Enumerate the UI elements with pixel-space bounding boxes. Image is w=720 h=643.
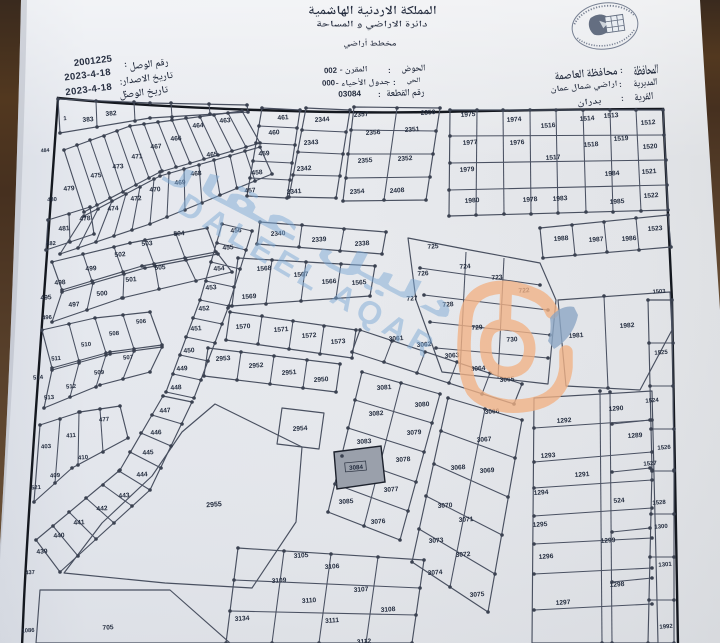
- svg-text:499: 499: [85, 265, 97, 273]
- svg-text:3134: 3134: [235, 615, 250, 623]
- svg-text:1503: 1503: [652, 288, 666, 296]
- svg-text:03084: 03084: [338, 89, 362, 99]
- svg-text:506: 506: [136, 318, 147, 326]
- svg-text:465: 465: [206, 151, 218, 159]
- svg-text:513: 513: [44, 394, 55, 402]
- svg-text:2342: 2342: [297, 165, 312, 173]
- svg-text:459: 459: [258, 150, 270, 158]
- svg-text:1975: 1975: [461, 111, 476, 119]
- svg-text:3077: 3077: [384, 486, 399, 494]
- svg-text:1983: 1983: [553, 195, 568, 203]
- svg-text:453: 453: [205, 284, 217, 292]
- svg-text:473: 473: [112, 163, 124, 171]
- svg-text:1987: 1987: [589, 236, 604, 244]
- svg-text:729: 729: [471, 324, 483, 332]
- svg-text:1528: 1528: [652, 499, 666, 507]
- svg-text:2352: 2352: [398, 155, 413, 163]
- svg-text:1297: 1297: [556, 599, 571, 607]
- svg-text:383: 383: [82, 116, 94, 124]
- svg-text:439: 439: [36, 548, 48, 556]
- svg-text:461: 461: [277, 114, 289, 122]
- svg-text:444: 444: [136, 471, 148, 479]
- svg-text:724: 724: [459, 263, 471, 271]
- svg-text:471: 471: [131, 153, 143, 161]
- svg-text:478: 478: [79, 215, 91, 223]
- svg-text:472: 472: [130, 195, 142, 203]
- svg-text:1519: 1519: [614, 135, 629, 143]
- svg-text:1569: 1569: [242, 293, 257, 301]
- svg-text:3078: 3078: [396, 456, 411, 464]
- svg-text:512: 512: [66, 383, 77, 391]
- svg-text:3106: 3106: [325, 563, 340, 571]
- svg-text:1992: 1992: [659, 623, 673, 631]
- svg-text:1980: 1980: [465, 197, 480, 205]
- svg-text:498: 498: [54, 279, 66, 287]
- svg-text:1512: 1512: [641, 119, 656, 127]
- svg-text:1514: 1514: [580, 115, 595, 123]
- svg-text:1527: 1527: [643, 460, 657, 468]
- svg-text:514: 514: [33, 374, 44, 382]
- svg-text:1979: 1979: [460, 166, 475, 174]
- svg-text:2354: 2354: [350, 188, 365, 196]
- svg-text:1526: 1526: [657, 444, 671, 452]
- svg-text:497: 497: [68, 301, 80, 309]
- svg-text:3072: 3072: [456, 551, 471, 559]
- svg-text:1523: 1523: [648, 225, 663, 233]
- svg-text:1982: 1982: [620, 322, 635, 330]
- svg-text:475: 475: [90, 172, 102, 180]
- svg-text:1981: 1981: [569, 332, 584, 340]
- svg-text:463: 463: [219, 117, 231, 125]
- svg-text:2955: 2955: [206, 501, 222, 509]
- svg-text:730: 730: [506, 336, 518, 344]
- svg-text:1520: 1520: [643, 143, 658, 151]
- svg-text:1299: 1299: [601, 537, 616, 545]
- svg-text:1985: 1985: [610, 198, 625, 206]
- svg-text:3111: 3111: [325, 617, 340, 625]
- svg-text:505: 505: [154, 264, 166, 272]
- svg-text:3076: 3076: [371, 518, 386, 526]
- svg-text:440: 440: [53, 532, 65, 540]
- svg-text:1571: 1571: [274, 326, 289, 334]
- svg-text:477: 477: [99, 416, 110, 424]
- svg-text:481: 481: [58, 225, 70, 233]
- svg-text:507: 507: [123, 354, 134, 362]
- svg-text:3074: 3074: [428, 569, 443, 577]
- svg-text:705: 705: [102, 624, 114, 632]
- svg-text::: :: [378, 90, 381, 99]
- svg-text:443: 443: [118, 492, 130, 500]
- svg-text:441: 441: [73, 519, 85, 527]
- svg-text:725: 725: [427, 243, 439, 251]
- svg-text:466: 466: [170, 135, 182, 143]
- svg-text:3083: 3083: [357, 438, 372, 446]
- svg-text:3070: 3070: [438, 502, 453, 510]
- svg-text:002: 002: [324, 66, 338, 75]
- svg-text:1570: 1570: [236, 323, 251, 331]
- svg-text:524: 524: [613, 497, 625, 505]
- svg-text:2953: 2953: [216, 355, 231, 363]
- svg-text:3069: 3069: [480, 467, 495, 475]
- svg-text:1290: 1290: [609, 405, 624, 413]
- svg-text::: :: [393, 78, 396, 87]
- svg-text:1984: 1984: [605, 170, 620, 178]
- svg-text:3109: 3109: [272, 577, 287, 585]
- svg-text:3081: 3081: [377, 384, 392, 392]
- svg-text:3112: 3112: [357, 638, 372, 643]
- svg-text:3071: 3071: [459, 516, 474, 524]
- svg-text:500: 500: [96, 290, 108, 298]
- svg-text:508: 508: [109, 330, 120, 338]
- svg-text:510: 510: [81, 341, 92, 349]
- svg-text:2950: 2950: [314, 376, 329, 384]
- svg-text:501: 501: [125, 276, 137, 284]
- svg-text:452: 452: [198, 305, 210, 313]
- svg-text:448: 448: [170, 384, 182, 392]
- svg-text:495: 495: [40, 294, 52, 302]
- svg-text:2351: 2351: [405, 126, 420, 134]
- svg-text:3107: 3107: [354, 586, 369, 594]
- svg-text::: :: [388, 66, 391, 75]
- svg-text:464: 464: [192, 122, 204, 130]
- svg-text:1522: 1522: [644, 192, 659, 200]
- svg-text:1976: 1976: [510, 139, 525, 147]
- svg-text:2357: 2357: [354, 111, 369, 119]
- svg-text:2408: 2408: [390, 187, 405, 195]
- svg-text:3067: 3067: [477, 436, 492, 444]
- svg-text:3075: 3075: [470, 591, 485, 599]
- svg-text:454: 454: [213, 265, 225, 273]
- svg-text:484: 484: [41, 148, 50, 155]
- svg-text:3079: 3079: [407, 429, 422, 437]
- svg-text:382: 382: [105, 110, 117, 118]
- svg-text:3082: 3082: [369, 410, 384, 418]
- svg-text:479: 479: [63, 185, 75, 193]
- svg-text:509: 509: [94, 369, 105, 377]
- svg-text:1289: 1289: [628, 432, 643, 440]
- svg-text:1298: 1298: [610, 581, 625, 589]
- svg-text:1296: 1296: [539, 553, 554, 561]
- svg-text:1300: 1300: [654, 523, 668, 531]
- svg-text:460: 460: [268, 129, 280, 137]
- svg-text:1294: 1294: [534, 489, 549, 497]
- svg-text:502: 502: [114, 251, 126, 259]
- svg-text:1988: 1988: [554, 235, 569, 243]
- svg-text:450: 450: [183, 347, 195, 355]
- svg-text:458: 458: [251, 169, 263, 177]
- svg-text:1525: 1525: [654, 349, 668, 357]
- svg-text:2952: 2952: [249, 362, 264, 370]
- svg-text:474: 474: [107, 205, 119, 213]
- svg-text:3108: 3108: [381, 606, 396, 614]
- svg-text:3080: 3080: [415, 401, 430, 409]
- svg-text:2356: 2356: [366, 129, 381, 137]
- svg-text:2951: 2951: [282, 369, 297, 377]
- svg-text:1974: 1974: [507, 116, 522, 124]
- svg-text:504: 504: [173, 230, 185, 238]
- svg-text:411: 411: [66, 432, 77, 440]
- svg-text:1292: 1292: [557, 417, 572, 425]
- svg-text:726: 726: [417, 270, 429, 278]
- svg-text:2343: 2343: [304, 139, 319, 147]
- svg-text:437: 437: [25, 569, 35, 577]
- svg-text:446: 446: [150, 429, 162, 437]
- svg-text:1986: 1986: [622, 235, 637, 243]
- svg-text:442: 442: [96, 505, 108, 513]
- svg-text:1086: 1086: [21, 627, 35, 635]
- svg-text:1524: 1524: [645, 397, 659, 405]
- svg-text:1293: 1293: [541, 452, 556, 460]
- svg-text:3110: 3110: [302, 597, 317, 605]
- svg-text:503: 503: [141, 240, 153, 248]
- svg-text:1301: 1301: [658, 561, 672, 569]
- svg-text:1517: 1517: [546, 154, 561, 162]
- svg-text:1521: 1521: [642, 168, 657, 176]
- svg-text:2350: 2350: [421, 109, 436, 117]
- svg-text:2355: 2355: [358, 157, 373, 165]
- svg-text:482: 482: [46, 240, 56, 248]
- svg-text:3105: 3105: [294, 552, 309, 560]
- svg-text:1573: 1573: [331, 338, 346, 346]
- svg-text:1295: 1295: [533, 521, 548, 529]
- svg-text:496: 496: [42, 314, 53, 322]
- svg-text:470: 470: [149, 186, 161, 194]
- svg-text:2344: 2344: [315, 116, 330, 124]
- svg-text:410: 410: [78, 454, 89, 462]
- svg-text:511: 511: [51, 355, 62, 363]
- svg-text:467: 467: [150, 143, 162, 151]
- svg-text:1518: 1518: [584, 141, 599, 149]
- svg-text:2339: 2339: [312, 236, 327, 244]
- svg-text:3084: 3084: [349, 464, 364, 472]
- svg-text:3073: 3073: [429, 537, 444, 545]
- svg-text:1978: 1978: [523, 196, 538, 204]
- svg-text:521: 521: [31, 484, 42, 492]
- svg-text:480: 480: [47, 196, 57, 204]
- svg-text:3085: 3085: [339, 498, 354, 506]
- svg-text:403: 403: [41, 443, 52, 451]
- svg-text:447: 447: [159, 407, 171, 415]
- svg-text:1513: 1513: [604, 112, 619, 120]
- svg-text:449: 449: [176, 365, 188, 373]
- svg-text:445: 445: [142, 449, 154, 457]
- svg-text:1977: 1977: [463, 139, 478, 147]
- svg-text:1516: 1516: [541, 122, 556, 130]
- svg-text:409: 409: [50, 472, 61, 480]
- svg-text:2954: 2954: [293, 425, 308, 433]
- svg-text:451: 451: [190, 325, 202, 333]
- svg-text:1572: 1572: [302, 332, 317, 340]
- svg-text:2338: 2338: [355, 240, 370, 248]
- svg-text:3068: 3068: [451, 464, 466, 472]
- svg-text:2341: 2341: [287, 188, 302, 196]
- svg-text:000: 000: [322, 78, 336, 87]
- svg-text:1291: 1291: [575, 471, 590, 479]
